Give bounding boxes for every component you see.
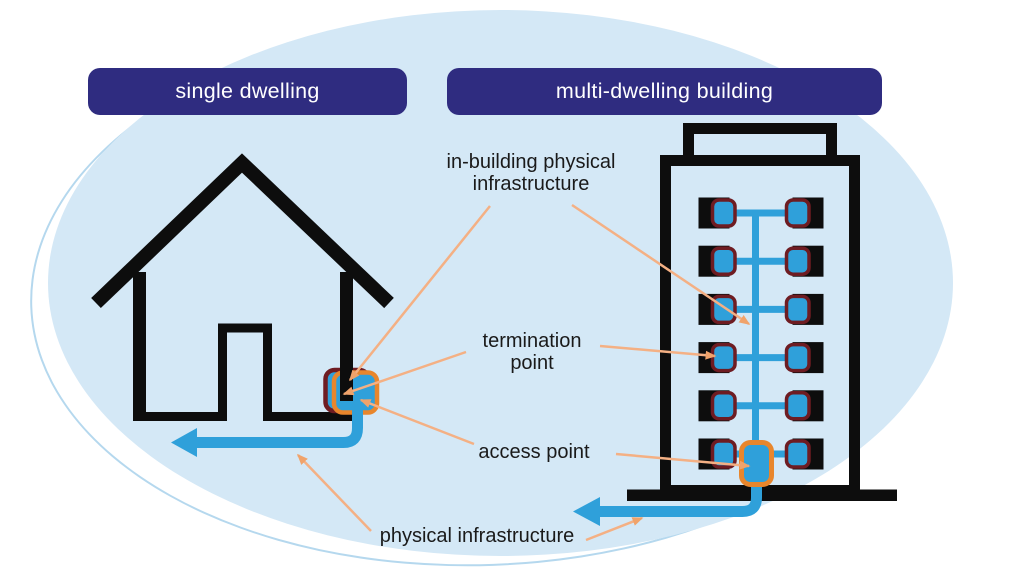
infrastructure-diagram: single dwelling multi-dwelling building … (0, 0, 1024, 577)
house-door (223, 328, 268, 421)
callout-in-building-line2: infrastructure (447, 173, 616, 195)
arrow-physical-to-house-cable (298, 455, 371, 531)
callout-termination-line2: point (483, 352, 582, 374)
header-multi-dwelling-label: multi-dwelling building (556, 79, 773, 104)
multi-dwelling-building (573, 129, 897, 527)
building-access-point-box (742, 443, 772, 485)
floor-row-1 (699, 198, 824, 229)
header-single-dwelling: single dwelling (88, 68, 407, 115)
floor-row-4 (699, 342, 824, 373)
house-drop-cable-arrowhead-icon (171, 428, 197, 457)
callout-in-building-infrastructure: in-building physical infrastructure (447, 151, 616, 195)
arrow-termination-to-building (600, 346, 715, 356)
callout-termination-point: termination point (483, 330, 582, 374)
callout-physical-label: physical infrastructure (380, 525, 575, 547)
floor-row-3 (699, 294, 824, 325)
callout-access-point: access point (478, 441, 589, 463)
building-drop-cable-arrowhead-icon (573, 497, 600, 526)
header-multi-dwelling: multi-dwelling building (447, 68, 882, 115)
callout-in-building-line1: in-building physical (447, 151, 616, 173)
floor-row-5 (699, 390, 824, 421)
arrow-access-to-house (361, 400, 474, 444)
header-single-dwelling-label: single dwelling (175, 79, 319, 104)
callout-physical-infrastructure: physical infrastructure (380, 525, 575, 547)
floor-row-2 (699, 246, 824, 277)
single-dwelling-house (96, 163, 389, 457)
callout-termination-line1: termination (483, 330, 582, 352)
callout-access-label: access point (478, 441, 589, 463)
